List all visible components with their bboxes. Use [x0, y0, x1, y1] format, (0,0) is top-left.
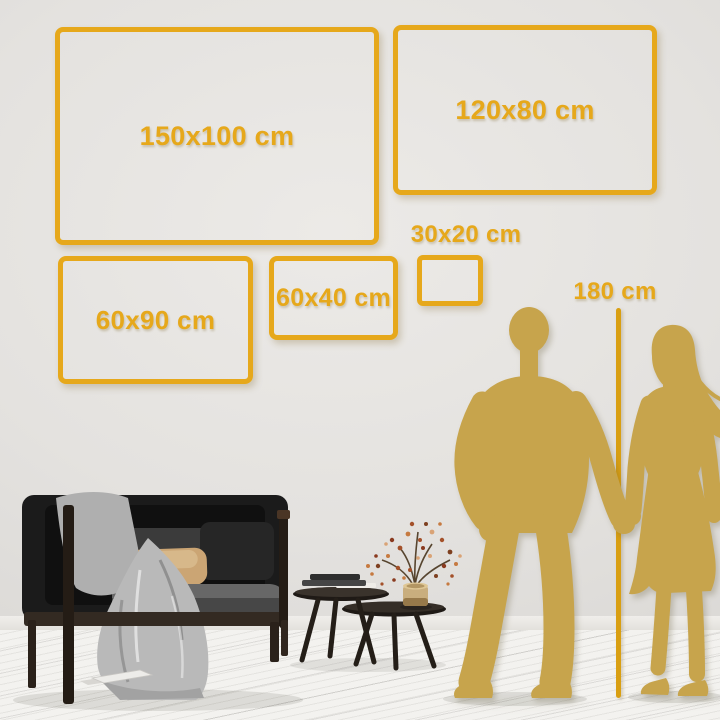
- size-label-150x100: 150x100 cm: [140, 121, 295, 152]
- tall-table-surface: [295, 587, 387, 597]
- plant-branches: [382, 532, 450, 585]
- plant-blossoms: [366, 522, 462, 586]
- baseboard: [0, 616, 720, 631]
- sofa-arm-peg: [277, 510, 290, 519]
- sofa-shell: [22, 495, 288, 620]
- size-frame-60x40: 60x40 cm: [269, 256, 398, 340]
- sofa-front-right-post: [279, 512, 288, 628]
- woman-skirt: [629, 468, 716, 594]
- size-label-60x90: 60x90 cm: [96, 305, 216, 336]
- size-frame-120x80: 120x80 cm: [393, 25, 657, 195]
- table-books: [302, 574, 376, 588]
- woman-hair: [652, 325, 720, 446]
- height-ruler-line: [616, 308, 621, 698]
- height-label: 180 cm: [550, 278, 680, 306]
- gray-pillow: [93, 528, 211, 578]
- seat-cushion-top: [112, 584, 283, 600]
- sofa-back: [45, 505, 265, 605]
- size-frame-30x20: [417, 255, 483, 306]
- low-table-top: [342, 602, 446, 617]
- seat-cushion-front: [112, 598, 283, 615]
- tan-pillow: [112, 547, 207, 587]
- size-label-60x40: 60x40 cm: [276, 284, 391, 313]
- size-frame-60x90: 60x90 cm: [58, 256, 253, 384]
- size-frame-150x100: 150x100 cm: [55, 27, 379, 245]
- size-guide-scene: 150x100 cm 120x80 cm 60x90 cm 60x40 cm 3…: [0, 0, 720, 720]
- wood-floor: [0, 630, 720, 720]
- brass-vase: [403, 583, 428, 607]
- tall-table-top: [293, 587, 389, 601]
- plant-vase: [366, 522, 462, 610]
- low-table-surface: [344, 602, 444, 613]
- size-label-120x80: 120x80 cm: [455, 95, 594, 126]
- size-label-30x20: 30x20 cm: [391, 221, 541, 249]
- dark-pillow: [200, 522, 274, 580]
